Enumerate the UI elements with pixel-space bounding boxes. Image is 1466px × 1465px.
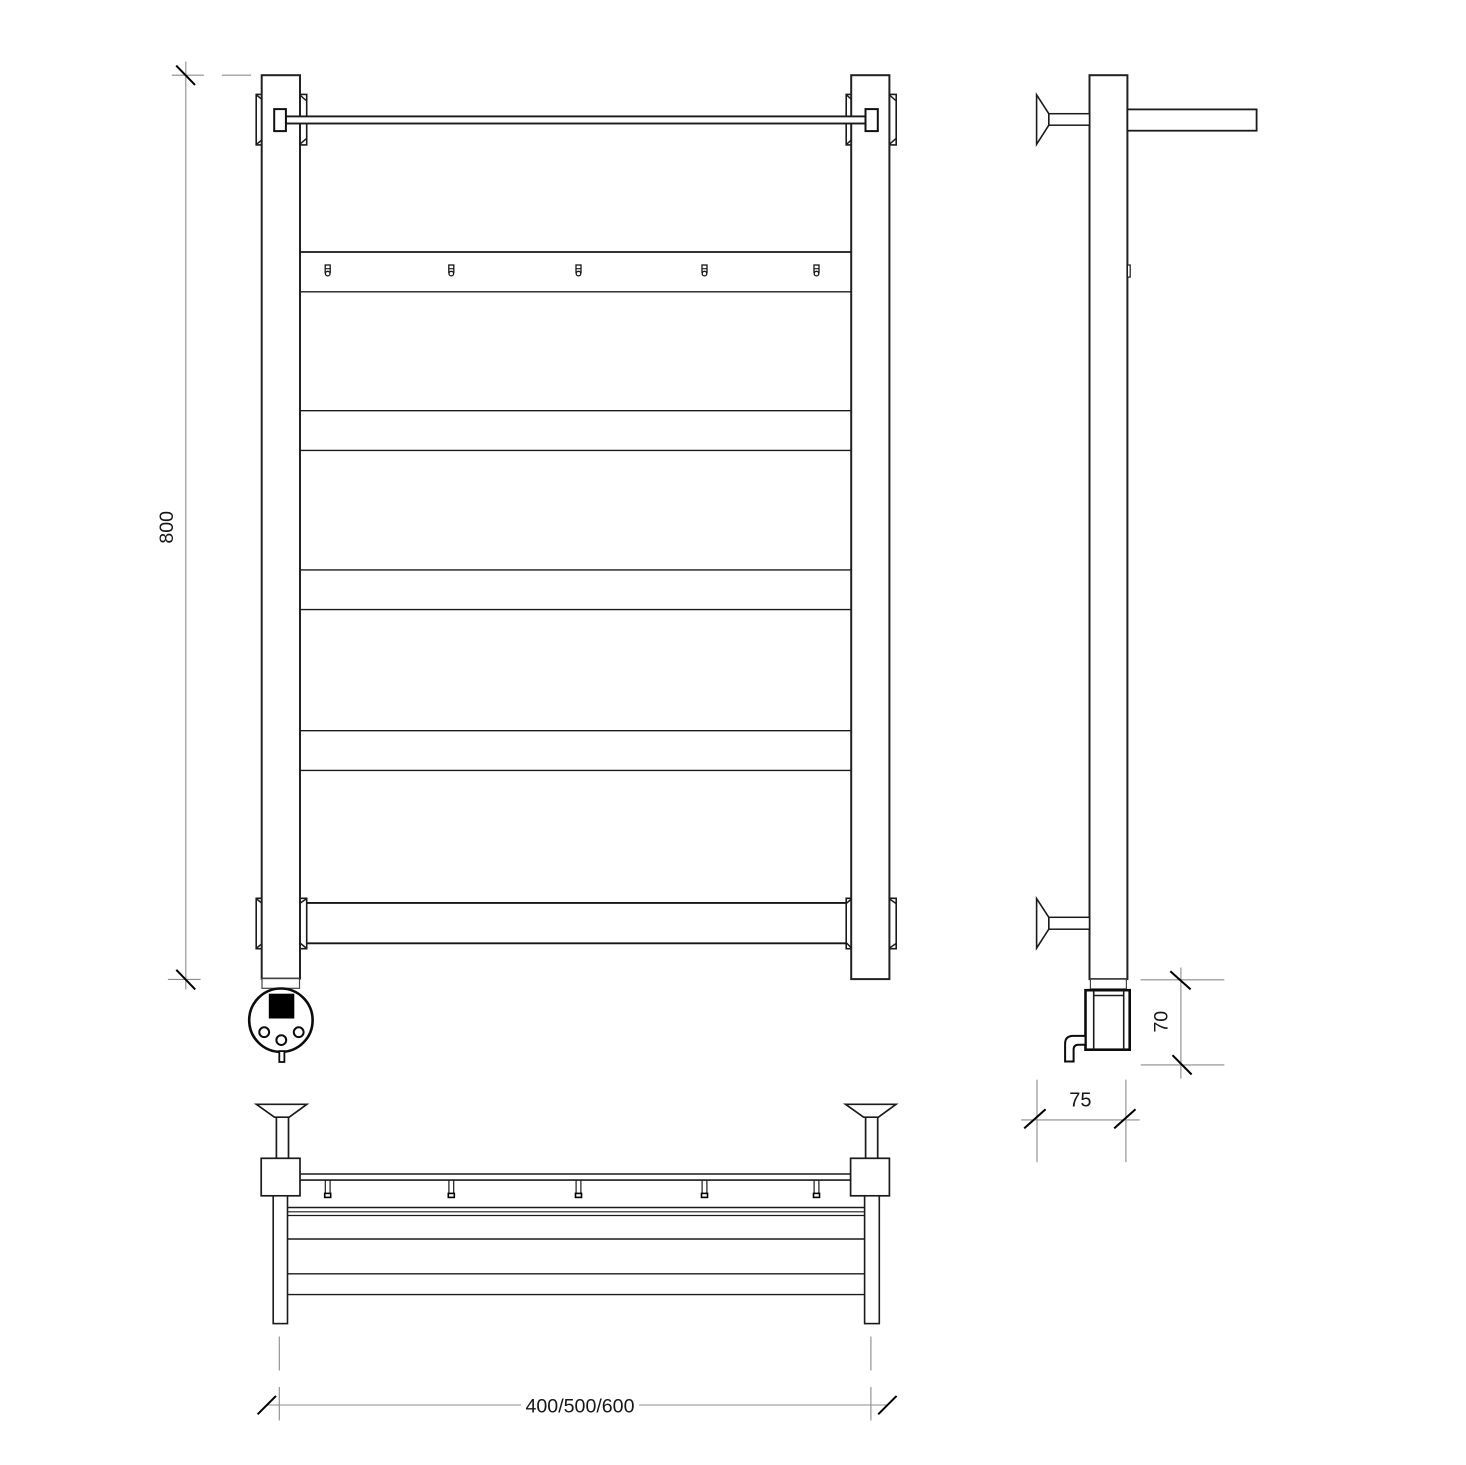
svg-text:400/500/600: 400/500/600: [526, 1396, 635, 1418]
svg-text:70: 70: [1151, 1011, 1173, 1033]
svg-text:75: 75: [1069, 1090, 1091, 1112]
svg-text:800: 800: [156, 511, 178, 544]
